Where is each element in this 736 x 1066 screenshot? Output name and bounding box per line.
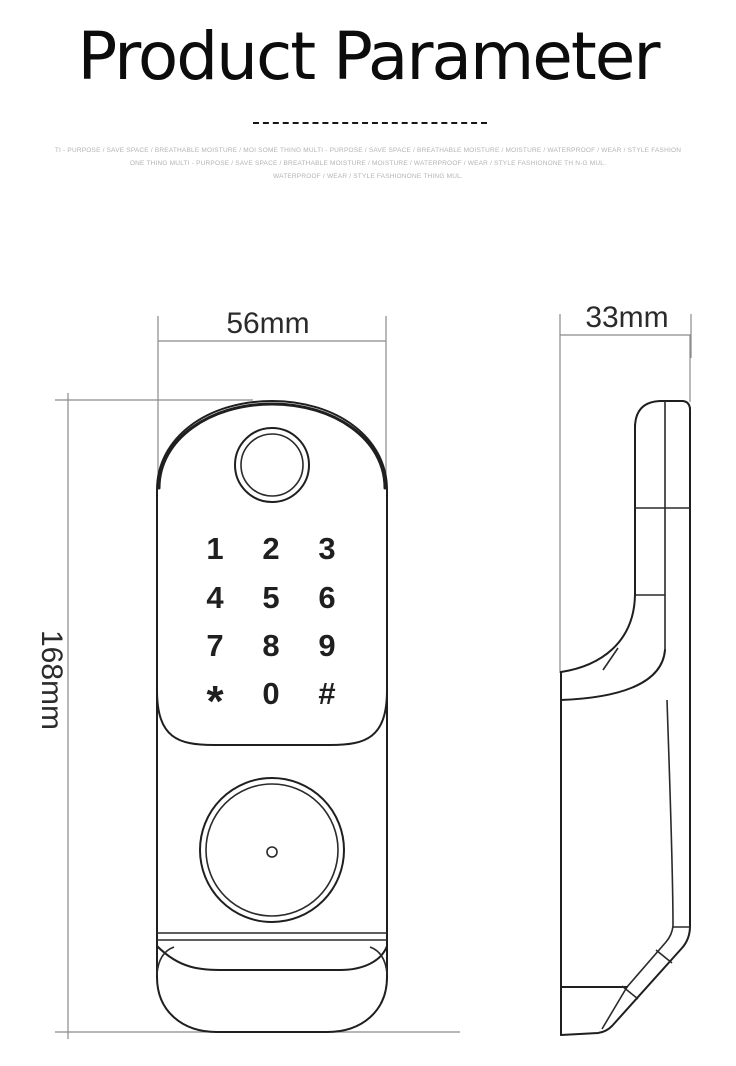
dimension-front-height: 168mm [35, 393, 460, 1039]
key-0: 0 [262, 676, 279, 711]
technical-drawing: 56mm 168mm 33mm [0, 0, 736, 1066]
key-star: * [206, 677, 224, 726]
side-top-cap [635, 401, 690, 428]
key-7: 7 [206, 628, 223, 663]
front-width-label: 56mm [226, 307, 309, 340]
key-6: 6 [318, 580, 335, 615]
key-2: 2 [262, 531, 279, 566]
side-depth-label: 33mm [585, 301, 668, 334]
key-1: 1 [206, 531, 223, 566]
fingerprint-sensor-icon [235, 428, 309, 502]
side-back-edge [561, 408, 690, 1035]
key-8: 8 [262, 628, 279, 663]
key-9: 9 [318, 628, 335, 663]
turn-knob [200, 778, 344, 922]
dimension-front-width: 56mm [158, 307, 386, 488]
product-parameter-page: Product Parameter TI - PURPOSE / SAVE SP… [0, 0, 736, 1066]
front-height-label: 168mm [35, 630, 68, 730]
key-4: 4 [206, 580, 224, 615]
key-5: 5 [262, 580, 279, 615]
keypad: 1 2 3 4 5 6 7 8 9 * 0 # [206, 531, 335, 726]
side-neck-outer [561, 595, 635, 672]
touch-panel-dome [159, 404, 385, 488]
key-3: 3 [318, 531, 335, 566]
dimension-side-depth: 33mm [560, 301, 691, 673]
front-view: 1 2 3 4 5 6 7 8 9 * 0 # [157, 401, 387, 1032]
key-hash: # [318, 676, 335, 711]
side-neck-inner [561, 650, 665, 700]
knob-center-dot [267, 847, 277, 857]
bottom-bumper [157, 946, 387, 974]
body-seams [157, 933, 387, 940]
side-view [561, 401, 690, 1035]
